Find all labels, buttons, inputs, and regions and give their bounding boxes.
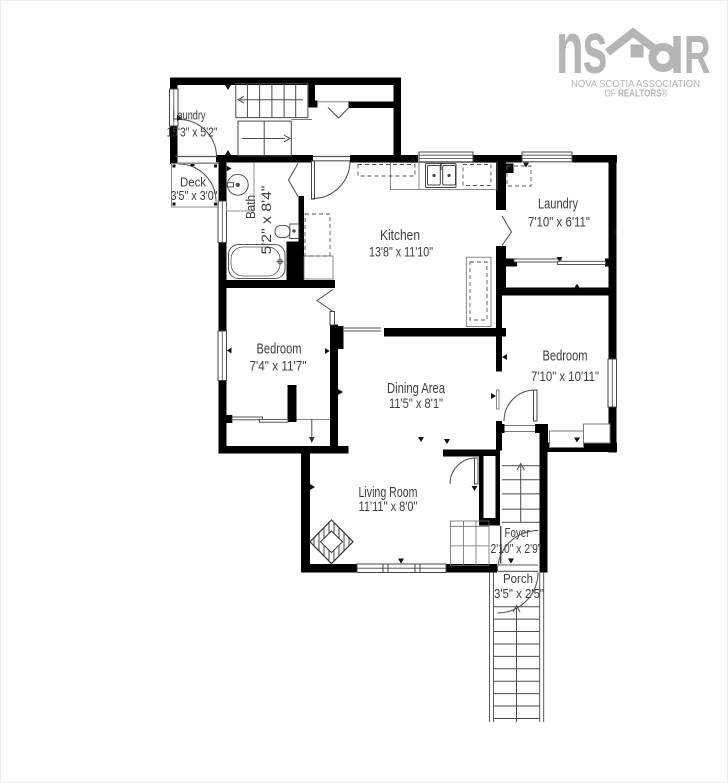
svg-text:Laundry: Laundry bbox=[538, 197, 579, 213]
svg-text:13'8" x 11'10": 13'8" x 11'10" bbox=[369, 244, 433, 260]
svg-text:3'5" x 2'5": 3'5" x 2'5" bbox=[494, 587, 544, 601]
svg-text:Porch: Porch bbox=[503, 572, 533, 586]
svg-text:11'11" x 8'0": 11'11" x 8'0" bbox=[359, 498, 418, 514]
svg-text:7'10" x 6'11": 7'10" x 6'11" bbox=[528, 214, 590, 230]
svg-text:OF REALTORS®: OF REALTORS® bbox=[605, 88, 668, 100]
svg-text:7'10" x 10'11": 7'10" x 10'11" bbox=[531, 368, 599, 384]
svg-text:7'4" x 11'7": 7'4" x 11'7" bbox=[250, 358, 307, 374]
svg-text:ns: ns bbox=[556, 7, 606, 89]
svg-text:5'2" x 8'4": 5'2" x 8'4" bbox=[258, 185, 274, 254]
svg-text:Laundry: Laundry bbox=[173, 109, 207, 123]
svg-text:15'3" x 5'2": 15'3" x 5'2" bbox=[167, 126, 218, 140]
svg-text:R: R bbox=[684, 24, 711, 85]
svg-text:Bedroom: Bedroom bbox=[257, 342, 302, 358]
svg-text:Deck: Deck bbox=[180, 176, 207, 190]
svg-text:2'10" x 2'9": 2'10" x 2'9" bbox=[491, 542, 542, 556]
svg-text:11'5" x 8'1": 11'5" x 8'1" bbox=[389, 395, 443, 411]
svg-text:Kitchen: Kitchen bbox=[380, 228, 420, 244]
svg-text:Bath: Bath bbox=[244, 195, 258, 219]
svg-text:Foyer: Foyer bbox=[505, 526, 530, 540]
svg-text:3'5" x 3'0": 3'5" x 3'0" bbox=[171, 189, 218, 203]
svg-text:Bedroom: Bedroom bbox=[543, 349, 588, 365]
